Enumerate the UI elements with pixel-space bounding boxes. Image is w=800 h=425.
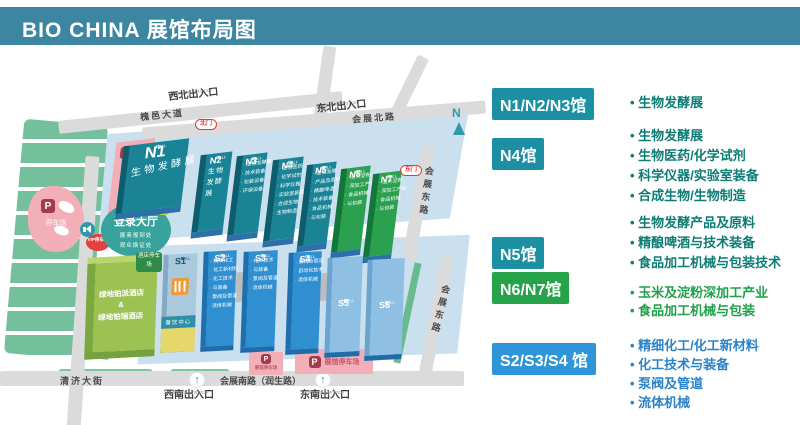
legend-items: 精细化工/化工新材料化工技术与装备泵阀及管道流体机械 <box>630 336 759 412</box>
login-hall-line: 观众换证处 <box>101 241 171 249</box>
legend-item: 精酿啤酒与技术装备 <box>630 233 781 253</box>
legend-item: 流体机械 <box>630 393 759 412</box>
compass-arrow-icon <box>453 122 465 135</box>
hall-s5: S5 馆HALL <box>324 256 363 358</box>
legend-items: 生物发酵产品及原料精酿啤酒与技术装备食品加工机械与包装技术 <box>630 213 781 273</box>
legend-item: 精细化工/化工新材料 <box>630 336 759 355</box>
hall-text-line: 生物制造 <box>273 207 298 219</box>
legend-badge: N1/N2/N3馆 <box>492 88 594 120</box>
dining-center-block: 餐饮中心 <box>160 315 195 353</box>
legend-item: 生物医药/化学试剂 <box>630 146 759 166</box>
legend-row: N5馆 生物发酵产品及原料精酿啤酒与技术装备食品加工机械与包装技术 <box>492 213 781 273</box>
hall-n1: N1 馆HALL 生物发酵展 <box>115 138 189 219</box>
hall-text-line: 流体机械 <box>249 283 276 293</box>
legend-badge: N4馆 <box>492 138 544 170</box>
legend-row: N6/N7馆 玉米及淀粉深加工产业食品加工机械与包装 <box>492 270 768 320</box>
legend-item: 科学仪器/实验室装备 <box>630 166 759 186</box>
venue-map: 槐邑大道 会展北路 清济大街 会展南路（润生路） 会展东路 会展东路 黄河大道 … <box>0 46 486 425</box>
hall-text-line: 与包装 <box>343 198 367 210</box>
parking-icon: P <box>309 356 321 368</box>
legend-item: 生物发酵展 <box>630 126 759 146</box>
east-gate-badge: 东门 <box>400 165 422 176</box>
hall-text-line: 流体机械 <box>209 301 235 311</box>
north-gate-badge: 北门 <box>195 119 217 130</box>
restaurant-icon <box>171 278 189 296</box>
hall-text-line: 与包装 <box>307 212 331 224</box>
hall-text-line: 环保设备 <box>239 185 264 197</box>
legend-items: 玉米及淀粉深加工产业食品加工机械与包装 <box>630 284 768 320</box>
road-label-qingji: 清济大街 <box>60 374 104 387</box>
parking-label: 停车场 <box>36 218 76 228</box>
hall-s2: S2 馆HALL 精细化工化工新材料化工技术与装备泵阀及管道流体机械 <box>200 250 237 352</box>
legend-row: N4馆 生物发酵展生物医药/化学试剂科学仪器/实验室装备合成生物/生物制造 <box>492 126 759 206</box>
legend-badge: N6/N7馆 <box>492 272 569 304</box>
hall-text-line: 与包装 <box>375 203 398 215</box>
hall-s3: S3 馆HALL 化工技术与装备泵阀及管道流体机械 <box>240 250 278 353</box>
legend-item: 合成生物/生物制造 <box>630 186 759 206</box>
compass-label: N <box>452 106 461 120</box>
legend-item: 化工技术与装备 <box>630 355 759 374</box>
legend-panel: N1/N2/N3馆 生物发酵展 N4馆 生物发酵展生物医药/化学试剂科学仪器/实… <box>492 0 800 425</box>
legend-item: 生物发酵产品及原料 <box>630 213 781 233</box>
legend-badge: S2/S3/S4 馆 <box>492 343 596 375</box>
login-hall-line: 展商报到处 <box>101 231 171 239</box>
legend-items: 生物发酵展生物医药/化学试剂科学仪器/实验室装备合成生物/生物制造 <box>630 126 759 206</box>
legend-item: 生物发酵展 <box>630 93 703 113</box>
hall-text-line: 流体机械 <box>295 275 321 285</box>
parking-icon: P <box>41 199 55 213</box>
parking-path <box>57 199 77 216</box>
hall-s1: S1 馆HALL 餐饮中心 <box>160 253 198 353</box>
entrance-arrow-icon: ↑ <box>189 372 205 388</box>
south-parking-small: P 展馆停车场 <box>249 352 283 375</box>
page: BIO CHINA 展馆布局图 槐邑大道 会展北路 清济大街 会展南路（润生路）… <box>0 0 800 425</box>
west-parking-area: P 停车场 <box>28 186 84 252</box>
parking-label: 展馆停车场 <box>325 357 360 367</box>
legend-row: N1/N2/N3馆 生物发酵展 <box>492 88 703 120</box>
broadcast-icon <box>80 222 95 237</box>
parking-label: 展馆停车场 <box>249 365 283 371</box>
hotel-parking-badge: 酒店停车场 <box>136 252 162 272</box>
hall-body-text: 生物发酵展 <box>204 165 228 201</box>
hall-s4: S4 馆HALL 泵阀及管道自动化技术流体机械 <box>285 251 322 355</box>
hall-s6: S6 馆HALL <box>364 258 405 361</box>
legend-item: 食品加工机械与包装 <box>630 302 768 320</box>
legend-items: 生物发酵展 <box>630 93 703 120</box>
legend-item: 玉米及淀粉深加工产业 <box>630 284 768 302</box>
legend-item: 泵阀及管道 <box>630 374 759 393</box>
entrance-arrow-icon: ↑ <box>315 372 331 388</box>
legend-row: S2/S3/S4 馆 精细化工/化工新材料化工技术与装备泵阀及管道流体机械 <box>492 336 759 412</box>
legend-badge: N5馆 <box>492 237 544 269</box>
dining-center-label: 餐饮中心 <box>161 315 196 329</box>
road-label-south: 会展南路（润生路） <box>220 374 301 387</box>
parking-icon: P <box>261 354 271 364</box>
